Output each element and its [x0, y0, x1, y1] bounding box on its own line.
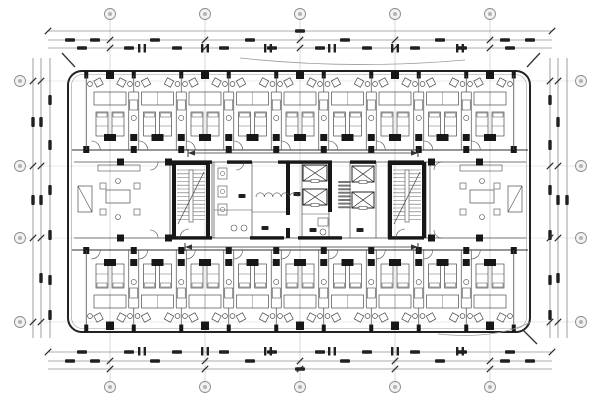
door-swing-arc [281, 141, 290, 150]
structural-column [117, 159, 124, 166]
dimension-text-illegible [90, 359, 100, 362]
washbasin-symbol [321, 279, 326, 284]
bed-symbol [492, 112, 504, 136]
suite-stool [116, 179, 121, 184]
suite-bed-line [78, 186, 92, 212]
window-tick [397, 347, 399, 356]
dimension-text-illegible [435, 38, 445, 41]
facade-mullion [464, 325, 468, 333]
chair-symbol [164, 78, 173, 87]
washbasin-symbol [231, 225, 237, 231]
leader-slash [523, 330, 537, 344]
chair-symbol [354, 78, 363, 87]
window-tick [456, 44, 458, 53]
door-swing-arc [329, 250, 338, 259]
cabinet-block [294, 134, 306, 141]
stool-symbol [460, 82, 465, 87]
bed-symbol [334, 112, 346, 136]
stool-symbol [223, 314, 228, 319]
bathtub-symbol [177, 100, 185, 110]
window-tick [328, 44, 330, 53]
bathtub-symbol [272, 100, 280, 110]
leader-slash [527, 53, 540, 67]
floorplan-svg [0, 0, 600, 400]
bed-symbol [207, 264, 219, 288]
shaft-block [178, 259, 185, 266]
cabinet-block [247, 134, 259, 141]
stool-symbol [270, 314, 275, 319]
dimension-text-illegible [362, 350, 372, 353]
grid-bubble-label-smudge [108, 385, 112, 389]
suite-chair [494, 209, 500, 215]
shaft-block [415, 134, 422, 141]
chair-symbol [117, 313, 126, 322]
scanned-floorplan-page [0, 0, 600, 400]
washbasin-symbol [179, 279, 184, 284]
dimension-text-illegible [565, 195, 568, 205]
structural-column [117, 235, 124, 242]
chair-symbol [189, 78, 198, 87]
dimension-text-illegible [410, 46, 420, 49]
note-text-line-illegible [338, 199, 351, 201]
chair-symbol [402, 78, 411, 87]
elevator-door [359, 180, 367, 183]
washbasin-symbol [369, 279, 374, 284]
corridor-column [416, 146, 422, 153]
window-tick [397, 44, 399, 53]
core-bearing-wall [250, 236, 284, 239]
bed-symbol [286, 264, 298, 288]
chair-symbol [307, 78, 316, 87]
note-text-line-illegible [338, 192, 351, 194]
dimension-text-illegible [172, 350, 182, 353]
stool-symbol [460, 314, 465, 319]
shaft-block [463, 134, 470, 141]
dimension-text-illegible [505, 350, 515, 353]
door-swing-arc [234, 141, 243, 150]
canopy-arc [240, 58, 465, 65]
stair-wall [172, 162, 210, 165]
shaft-block [320, 134, 327, 141]
note-text-line-illegible [338, 181, 351, 183]
core-bearing-wall [298, 236, 342, 239]
dimension-text-illegible [556, 195, 559, 205]
dimension-text-illegible [48, 275, 51, 285]
grid-bubble-label-smudge [393, 12, 397, 16]
stool-symbol [468, 82, 473, 87]
washbasin-symbol [179, 115, 184, 120]
structural-column [201, 322, 209, 331]
cabinet-block [437, 259, 449, 266]
structural-column [106, 71, 114, 80]
stool-symbol [128, 314, 133, 319]
bathtub-symbol [462, 100, 470, 110]
bed-symbol [96, 112, 108, 136]
dimension-text-illegible [65, 38, 75, 41]
chair-symbol [284, 313, 293, 322]
dimension-text-illegible [435, 359, 445, 362]
bed-symbol [112, 264, 124, 288]
dimension-text-illegible [556, 117, 559, 127]
bed-symbol [334, 264, 346, 288]
stool-symbol [278, 314, 283, 319]
grid-bubble-label-smudge [108, 12, 112, 16]
dimension-text-illegible [548, 185, 551, 195]
chair-symbol [307, 313, 316, 322]
stool-symbol [270, 82, 275, 87]
window-tick [462, 347, 464, 356]
bed-symbol [381, 264, 393, 288]
dimension-text-illegible [500, 38, 510, 41]
bed-symbol [191, 264, 203, 288]
dimension-text-illegible [31, 195, 34, 205]
dimension-text-illegible [340, 38, 350, 41]
dimension-text-illegible [410, 350, 420, 353]
stool-symbol [420, 82, 425, 87]
room-label-illegible [357, 228, 364, 232]
washbasin-symbol [274, 279, 279, 284]
window-tick [138, 44, 140, 53]
chair-symbol [94, 313, 103, 322]
dimension-text-illegible [315, 350, 325, 353]
suite-stool [480, 215, 485, 220]
grid-bubble-label-smudge [18, 236, 22, 240]
structural-column [391, 322, 399, 331]
washbasin-symbol [464, 115, 469, 120]
shaft-block [130, 259, 137, 266]
stair-wall [172, 162, 176, 238]
note-text-line-illegible [338, 206, 351, 208]
note-text-line-illegible [338, 188, 351, 190]
core-bearing-wall [286, 162, 290, 215]
chair-symbol [354, 313, 363, 322]
corridor-column [273, 247, 279, 254]
dimension-text-illegible [48, 140, 51, 150]
grid-bubble-label-smudge [579, 164, 583, 168]
stool-symbol [230, 82, 235, 87]
structural-column [486, 322, 494, 331]
stool-symbol [508, 82, 513, 87]
suite-chair [100, 183, 106, 189]
dimension-text-illegible [48, 185, 51, 195]
window-tick [138, 347, 140, 356]
toilet-symbol [218, 204, 227, 215]
bathtub-symbol [225, 100, 233, 110]
dimension-text-illegible [525, 38, 535, 41]
chair-symbol [379, 313, 388, 322]
stool-symbol [88, 314, 93, 319]
suite-chair [460, 209, 466, 215]
room-label-illegible [262, 226, 269, 230]
bed-symbol [429, 112, 441, 136]
washbasin-symbol [369, 115, 374, 120]
chair-symbol [426, 313, 435, 322]
washbasin-symbol [226, 279, 231, 284]
door-swing-arc [186, 250, 195, 259]
window-tick [391, 44, 393, 53]
washbasin-symbol [416, 279, 421, 284]
core-bearing-wall [388, 236, 424, 239]
dimension-text-illegible [548, 140, 551, 150]
bed-symbol [96, 264, 108, 288]
dimension-text-illegible [556, 273, 559, 283]
elevator-door [311, 203, 319, 206]
corridor-column [178, 247, 184, 254]
chair-symbol [284, 78, 293, 87]
cabinet-block [342, 259, 354, 266]
chair-symbol [236, 313, 245, 322]
shaft-block [225, 259, 232, 266]
shaft-block [320, 259, 327, 266]
dimension-text-illegible [48, 95, 51, 105]
washbasin-symbol [131, 279, 136, 284]
chair-symbol [402, 313, 411, 322]
bathtub-symbol [415, 288, 423, 298]
stool-symbol [128, 82, 133, 87]
stool-symbol [373, 82, 378, 87]
structural-column [296, 71, 304, 80]
bed-symbol [350, 112, 362, 136]
chair-symbol [259, 313, 268, 322]
dimension-text-illegible [48, 230, 51, 240]
stair-wall [388, 162, 426, 165]
door-swing-arc [471, 141, 480, 150]
cabinet-block [484, 134, 496, 141]
cabinet-block [389, 259, 401, 266]
window-tick [144, 347, 146, 356]
bed-symbol [492, 264, 504, 288]
shaft-block [130, 134, 137, 141]
dimension-text-illegible [548, 95, 551, 105]
dimension-text-illegible [90, 38, 100, 41]
dimension-text-illegible [500, 359, 510, 362]
bed-symbol [476, 264, 488, 288]
suite-chair [460, 183, 466, 189]
door-swing-arc [434, 230, 442, 238]
stool-symbol [318, 314, 323, 319]
grid-bubble-label-smudge [579, 79, 583, 83]
cabinet-block [437, 134, 449, 141]
stool-symbol [413, 314, 418, 319]
window-tick [391, 347, 393, 356]
stool-symbol [175, 82, 180, 87]
facade-mullion [179, 325, 183, 333]
chair-symbol [259, 78, 268, 87]
stool-symbol [468, 314, 473, 319]
corridor-column [368, 146, 374, 153]
shaft-block [178, 134, 185, 141]
window-tick [207, 347, 209, 356]
door-swing-arc [376, 141, 385, 150]
door-swing-arc [329, 141, 338, 150]
door-swing-arc [424, 250, 433, 259]
chair-symbol [236, 78, 245, 87]
facade-mullion [84, 325, 88, 333]
stool-symbol [325, 82, 330, 87]
fixture-symbol [320, 229, 326, 235]
stair-wall [206, 162, 210, 238]
cabinet-block [152, 134, 164, 141]
bed-symbol [445, 112, 457, 136]
toilet-symbol [218, 186, 227, 197]
window-tick [328, 347, 330, 356]
chair-symbol [212, 78, 221, 87]
bed-symbol [191, 112, 203, 136]
room-label-illegible [310, 228, 317, 232]
cabinet-block [199, 134, 211, 141]
corridor-column [273, 146, 279, 153]
door-swing-arc [281, 250, 290, 259]
suite-chair [134, 209, 140, 215]
grid-bubble-label-smudge [203, 385, 207, 389]
chair-symbol [117, 78, 126, 87]
cabinet-block [294, 259, 306, 266]
facade-mullion [369, 325, 373, 333]
door-swing-arc [471, 250, 480, 259]
structural-column [428, 159, 435, 166]
dimension-text-illegible [124, 46, 134, 49]
core-bearing-wall [328, 162, 332, 212]
dimension-text-illegible [31, 117, 34, 127]
dimension-text-illegible [362, 46, 372, 49]
bed-symbol [397, 112, 409, 136]
chair-symbol [474, 313, 483, 322]
toilet-symbol [218, 168, 227, 179]
window-tick [264, 44, 266, 53]
dimension-text-illegible [124, 350, 134, 353]
structural-column [165, 235, 172, 242]
bathtub-symbol [320, 288, 328, 298]
stool-symbol [223, 82, 228, 87]
washbasin-symbol [241, 225, 247, 231]
corridor-column [131, 146, 137, 153]
bed-symbol [160, 112, 172, 136]
structural-column [486, 71, 494, 80]
suite-table [470, 190, 494, 203]
elevator-door [359, 206, 367, 209]
structural-column [165, 159, 172, 166]
toilet-symbol [220, 171, 224, 175]
dimension-text-illegible [39, 117, 42, 127]
stool-symbol [413, 82, 418, 87]
washbasin-symbol [416, 115, 421, 120]
dimension-text-illegible [77, 350, 87, 353]
bed-symbol [112, 112, 124, 136]
washbasin-symbol [131, 115, 136, 120]
door-swing-arc [376, 250, 385, 259]
corridor-column [131, 247, 137, 254]
dimension-text-illegible [150, 359, 160, 362]
suite-bed-line [508, 186, 522, 212]
dimension-text-illegible [219, 46, 229, 49]
corridor-column [416, 247, 422, 254]
shaft-block [273, 134, 280, 141]
chair-symbol [141, 313, 150, 322]
bed-symbol [255, 264, 267, 288]
facade-mullion [417, 325, 421, 333]
facade-mullion [274, 325, 278, 333]
chair-symbol [497, 313, 506, 322]
cabinet-block [104, 134, 116, 141]
toilet-symbol [220, 189, 224, 193]
fixture-symbol [318, 218, 328, 226]
structural-column [201, 71, 209, 80]
toilet-symbol [220, 207, 224, 211]
core-bearing-wall [286, 228, 290, 238]
bathtub-symbol [130, 288, 138, 298]
dimension-text-illegible [65, 359, 75, 362]
shaft-block [368, 259, 375, 266]
grid-bubble-label-smudge [298, 385, 302, 389]
window-tick [264, 347, 266, 356]
dimension-text-illegible [77, 46, 87, 49]
bed-symbol [429, 264, 441, 288]
suite-table [106, 190, 130, 203]
stool-symbol [325, 314, 330, 319]
building-inner-wall-line [72, 75, 527, 329]
washbasin-symbol [464, 279, 469, 284]
dimension-text-illegible [340, 359, 350, 362]
cabinet-block [389, 134, 401, 141]
stool-symbol [88, 82, 93, 87]
cabinet-block [484, 259, 496, 266]
structural-column [428, 235, 435, 242]
dimension-text-illegible [245, 359, 255, 362]
window-tick [456, 347, 458, 356]
window-tick [462, 44, 464, 53]
stool-symbol [420, 314, 425, 319]
reception-scallop [256, 193, 298, 197]
grid-bubble-label-smudge [18, 79, 22, 83]
facade-mullion [322, 325, 326, 333]
grid-bubble-label-smudge [579, 236, 583, 240]
window-tick [144, 44, 146, 53]
stool-symbol [230, 314, 235, 319]
dimension-text-illegible [48, 310, 51, 320]
suite-stool [116, 215, 121, 220]
bathtub-symbol [367, 100, 375, 110]
door-swing-arc [234, 250, 243, 259]
window-tick [270, 347, 272, 356]
note-text-line-illegible [338, 195, 351, 197]
note-text-line-illegible [338, 203, 351, 205]
washbasin-symbol [274, 115, 279, 120]
bathtub-symbol [272, 288, 280, 298]
note-text-line-illegible [338, 185, 351, 187]
bed-symbol [445, 264, 457, 288]
chair-symbol [449, 78, 458, 87]
door-swing-arc [139, 250, 148, 259]
corridor-column [463, 247, 469, 254]
structural-column [106, 322, 114, 331]
bathtub-symbol [462, 288, 470, 298]
suite-chair [100, 209, 106, 215]
stool-symbol [278, 82, 283, 87]
chair-symbol [331, 78, 340, 87]
door-swing-arc [424, 141, 433, 150]
stair-wall [422, 162, 426, 238]
cabinet-block [247, 259, 259, 266]
bathtub-symbol [225, 288, 233, 298]
corridor-column [463, 146, 469, 153]
bed-symbol [239, 112, 251, 136]
door-swing-arc [91, 250, 100, 259]
leader-slash [62, 53, 75, 67]
stool-symbol [318, 82, 323, 87]
grid-bubble-label-smudge [298, 12, 302, 16]
stool-symbol [365, 82, 370, 87]
dimension-text-illegible [245, 38, 255, 41]
